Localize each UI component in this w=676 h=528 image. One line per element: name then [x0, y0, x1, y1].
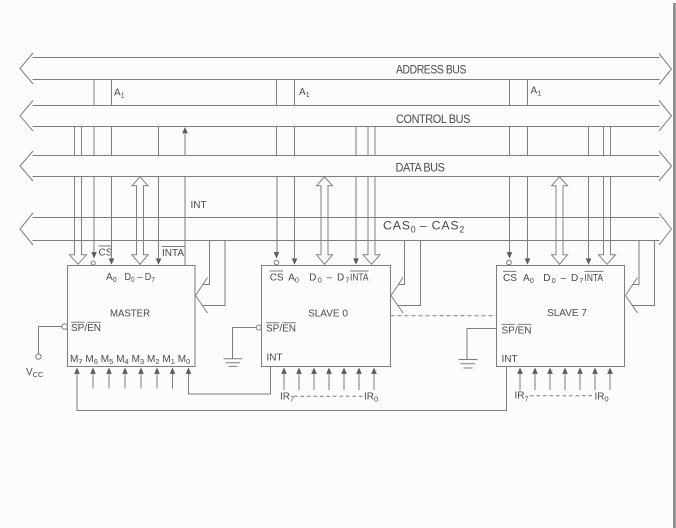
svg-text:INTA: INTA — [585, 273, 604, 284]
svg-text:CS: CS — [99, 248, 113, 259]
svg-text:INT: INT — [267, 353, 283, 364]
svg-text:CS: CS — [503, 273, 517, 284]
svg-text:M5: M5 — [101, 354, 113, 366]
svg-text:D0 – D7: D0 – D7 — [309, 272, 350, 284]
svg-text:M4: M4 — [116, 354, 128, 366]
svg-text:A1: A1 — [531, 86, 542, 98]
svg-text:INT: INT — [191, 200, 207, 211]
svg-text:VCC: VCC — [26, 367, 44, 379]
svg-text:CONTROL BUS: CONTROL BUS — [396, 112, 470, 126]
svg-text:M1: M1 — [162, 354, 174, 366]
svg-text:CAS0 – CAS2: CAS0 – CAS2 — [383, 219, 464, 235]
svg-text:A1: A1 — [114, 88, 125, 100]
svg-text:IR7: IR7 — [280, 391, 294, 403]
svg-text:INTA: INTA — [350, 272, 369, 283]
svg-text:M0: M0 — [178, 354, 190, 366]
svg-text:MASTER: MASTER — [110, 309, 150, 320]
svg-text:ADDRESS BUS: ADDRESS BUS — [396, 63, 466, 77]
svg-text:SLAVE 7: SLAVE 7 — [547, 308, 587, 319]
svg-text:A0: A0 — [288, 272, 299, 284]
svg-text:CS: CS — [270, 272, 284, 283]
svg-text:M3: M3 — [132, 354, 144, 366]
svg-text:SP/EN: SP/EN — [266, 324, 296, 335]
svg-text:INT: INT — [502, 354, 518, 365]
svg-text:SP/EN: SP/EN — [71, 323, 101, 334]
svg-text:A0: A0 — [523, 273, 534, 285]
svg-text:INTA: INTA — [162, 248, 184, 259]
svg-text:DATA BUS: DATA BUS — [396, 160, 445, 174]
svg-text:M7: M7 — [70, 354, 82, 366]
svg-text:A1: A1 — [299, 87, 310, 99]
svg-text:IR0: IR0 — [364, 391, 378, 403]
svg-text:IR0: IR0 — [595, 391, 609, 403]
svg-text:A0: A0 — [106, 272, 117, 284]
svg-text:M2: M2 — [147, 354, 159, 366]
svg-text:M6: M6 — [85, 354, 97, 366]
svg-text:D0 – D7: D0 – D7 — [125, 272, 156, 284]
svg-text:SP/EN: SP/EN — [502, 325, 532, 336]
svg-text:SLAVE 0: SLAVE 0 — [308, 309, 348, 320]
svg-text:D0 – D7: D0 – D7 — [543, 273, 584, 285]
svg-text:IR7: IR7 — [515, 391, 529, 403]
